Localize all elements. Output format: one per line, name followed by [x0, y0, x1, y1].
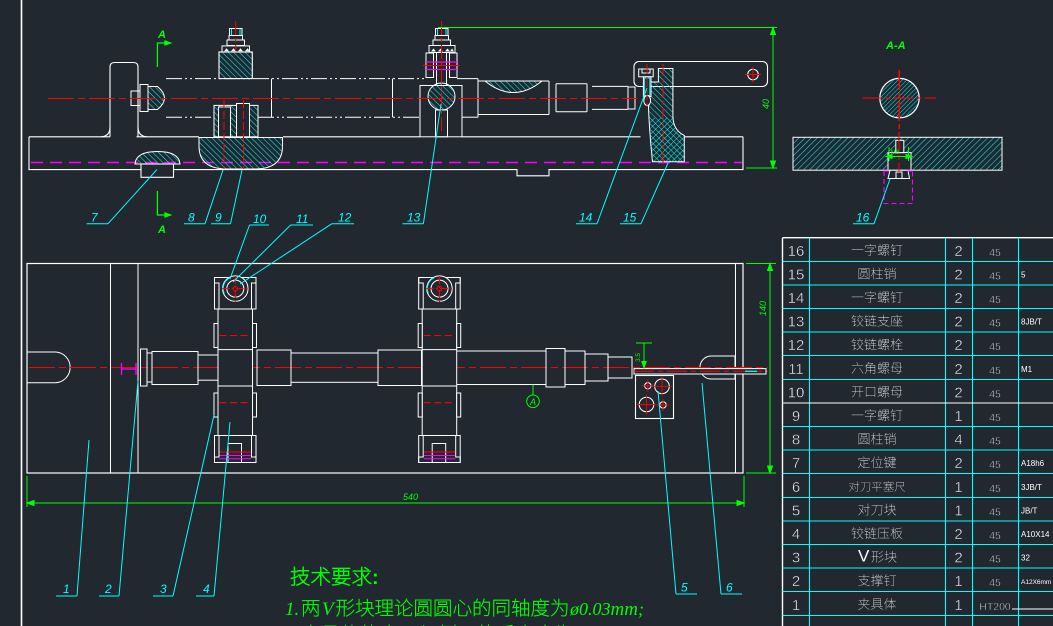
- svg-text:2: 2: [954, 314, 962, 331]
- svg-text:1: 1: [954, 597, 962, 614]
- svg-text:2: 2: [954, 337, 962, 354]
- svg-text:1: 1: [954, 502, 962, 519]
- svg-text:M1: M1: [1021, 365, 1033, 374]
- svg-text:3JB/T: 3JB/T: [1021, 483, 1042, 492]
- svg-text:13: 13: [788, 314, 805, 331]
- svg-text:16: 16: [856, 211, 870, 225]
- svg-text:10: 10: [253, 212, 267, 226]
- svg-text:45: 45: [989, 247, 1001, 259]
- svg-text:5: 5: [681, 581, 688, 595]
- svg-text:2: 2: [954, 266, 962, 283]
- svg-text:8: 8: [188, 211, 195, 225]
- svg-text:12: 12: [338, 211, 352, 225]
- svg-text:2: 2: [954, 526, 962, 543]
- svg-text:2: 2: [954, 550, 962, 567]
- svg-text:JB/T: JB/T: [1021, 506, 1038, 515]
- svg-text:A-A: A-A: [885, 40, 906, 52]
- svg-text:3: 3: [160, 582, 167, 596]
- svg-text:A: A: [529, 397, 536, 407]
- svg-text:4: 4: [203, 582, 210, 596]
- svg-text:4: 4: [954, 432, 962, 449]
- svg-text:12: 12: [788, 337, 805, 354]
- svg-text:32: 32: [1021, 554, 1030, 563]
- svg-text:40: 40: [761, 99, 771, 109]
- svg-text:V: V: [858, 547, 870, 566]
- svg-text:45: 45: [989, 577, 1001, 589]
- svg-text:14: 14: [788, 290, 805, 307]
- svg-text:11: 11: [788, 361, 804, 378]
- svg-text:14: 14: [579, 211, 593, 225]
- svg-text:1: 1: [63, 582, 70, 596]
- svg-text:2: 2: [104, 582, 112, 596]
- svg-text:6: 6: [792, 479, 800, 496]
- svg-text:5: 5: [792, 502, 800, 519]
- svg-text:45: 45: [989, 483, 1001, 495]
- svg-text::: :: [372, 567, 379, 589]
- svg-text:45: 45: [989, 294, 1001, 306]
- svg-text:7: 7: [792, 455, 800, 472]
- svg-text:45: 45: [989, 554, 1001, 566]
- svg-text:8JB/T: 8JB/T: [1021, 318, 1042, 327]
- svg-text:45: 45: [989, 459, 1001, 471]
- svg-text:16: 16: [788, 243, 805, 260]
- svg-text:5: 5: [1021, 270, 1026, 279]
- svg-text:9: 9: [215, 211, 222, 225]
- svg-text:8: 8: [792, 432, 800, 449]
- svg-text:13: 13: [407, 211, 421, 225]
- svg-text:2: 2: [792, 573, 800, 590]
- svg-text:4: 4: [792, 526, 800, 543]
- svg-text:1: 1: [954, 479, 962, 496]
- svg-text:2: 2: [954, 384, 962, 401]
- svg-text:1: 1: [954, 573, 962, 590]
- svg-text:45: 45: [989, 436, 1001, 448]
- svg-text:M8: M8: [891, 150, 900, 156]
- svg-text:45: 45: [989, 506, 1001, 518]
- svg-text:10: 10: [788, 384, 805, 401]
- svg-text:6: 6: [726, 581, 733, 595]
- svg-text:1: 1: [792, 597, 800, 614]
- svg-text:A: A: [157, 29, 166, 41]
- svg-text:3.5: 3.5: [635, 353, 642, 362]
- svg-text:3: 3: [792, 550, 800, 567]
- svg-text:45: 45: [989, 341, 1001, 353]
- svg-text:9: 9: [792, 408, 800, 425]
- svg-text:15: 15: [788, 266, 805, 283]
- svg-text:45: 45: [989, 318, 1001, 330]
- svg-text:45: 45: [989, 270, 1001, 282]
- svg-text:2: 2: [954, 243, 962, 260]
- svg-text:A: A: [157, 224, 166, 236]
- svg-text:140: 140: [758, 301, 768, 316]
- svg-text:540: 540: [403, 492, 418, 502]
- svg-text:1.: 1.: [285, 599, 299, 620]
- svg-text:HT200: HT200: [979, 601, 1011, 613]
- svg-text:2: 2: [954, 361, 962, 378]
- svg-text:A18h6: A18h6: [1021, 459, 1045, 468]
- svg-text:ø0.03mm;: ø0.03mm;: [569, 599, 644, 620]
- svg-text:2: 2: [954, 290, 962, 307]
- svg-text:1: 1: [954, 408, 962, 425]
- svg-text:A12X6mm: A12X6mm: [1021, 579, 1051, 586]
- svg-text:45: 45: [989, 412, 1001, 424]
- svg-text:45: 45: [989, 388, 1001, 400]
- svg-text:45: 45: [989, 365, 1001, 377]
- svg-text:15: 15: [623, 211, 637, 225]
- svg-text:45: 45: [989, 530, 1001, 542]
- svg-text:2: 2: [954, 455, 962, 472]
- svg-text:A10X14: A10X14: [1021, 530, 1050, 539]
- svg-text:11: 11: [296, 212, 308, 226]
